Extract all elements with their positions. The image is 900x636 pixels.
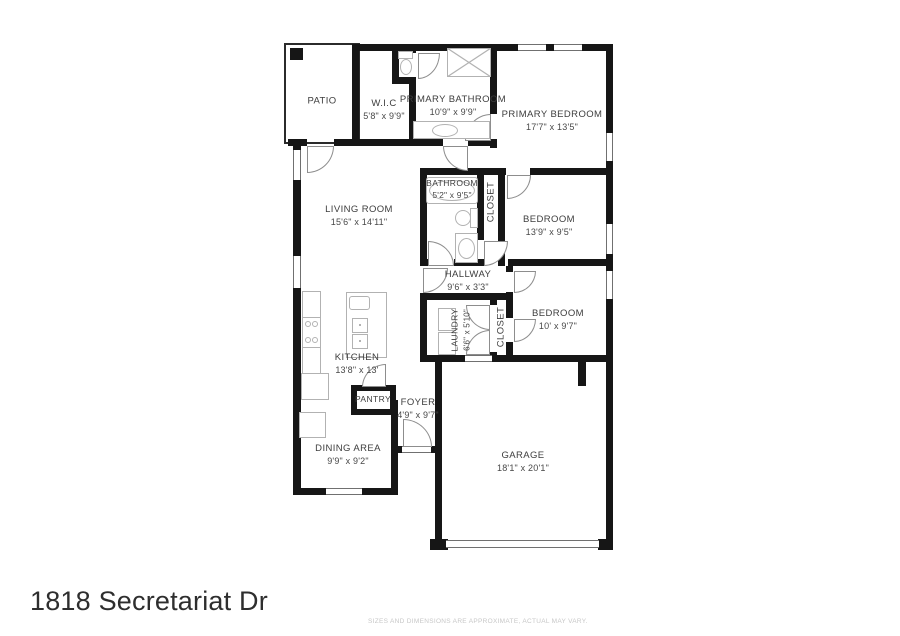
burner xyxy=(305,321,311,327)
window xyxy=(293,256,301,288)
room-name: LIVING ROOM xyxy=(325,203,393,216)
wall xyxy=(420,259,428,266)
wall xyxy=(490,293,497,305)
wall xyxy=(506,266,513,272)
window xyxy=(606,224,613,254)
room-name: LAUNDRY xyxy=(449,308,461,351)
room-dims: 6'6" x 5'10" xyxy=(461,308,472,351)
wall-stub xyxy=(578,362,586,386)
door-arc-front xyxy=(403,419,432,447)
room-label-living-room: LIVING ROOM 15'6" x 14'11" xyxy=(325,203,393,229)
door-arc-patio xyxy=(307,146,334,173)
room-dims: 13'8" x 13' xyxy=(335,364,380,377)
wall xyxy=(423,355,465,362)
window xyxy=(606,133,613,161)
room-name: PRIMARY BATHROOM xyxy=(400,93,506,106)
wall xyxy=(530,168,613,175)
room-label-closet2: CLOSET xyxy=(494,307,507,347)
toilet-bowl xyxy=(455,210,471,226)
dining-cabinet xyxy=(299,412,326,438)
wall xyxy=(352,44,359,146)
room-dims: 10' x 9'7" xyxy=(532,320,584,333)
window xyxy=(293,150,301,180)
room-name: KITCHEN xyxy=(335,351,380,364)
disclaimer-text: SIZES AND DIMENSIONS ARE APPROXIMATE, AC… xyxy=(368,618,588,625)
wall xyxy=(293,139,301,495)
front-door-sill xyxy=(402,446,431,453)
room-dims: 9'9" x 9'2" xyxy=(315,455,381,468)
window xyxy=(518,44,546,51)
room-name: FOYER xyxy=(397,396,439,409)
garage-door-jamb xyxy=(598,539,613,550)
appliance-knob xyxy=(359,324,361,326)
appliance-knob xyxy=(359,340,361,342)
room-dims: 18'1" x 20'1" xyxy=(497,462,549,475)
room-dims: 17'7" x 13'5" xyxy=(502,121,603,134)
vanity-sink xyxy=(432,124,458,137)
room-label-primary-bathroom: PRIMARY BATHROOM 10'9" x 9'9" xyxy=(400,93,506,119)
room-label-wic: W.I.C 5'8" x 9'9" xyxy=(363,97,405,123)
door-arc-water-closet xyxy=(418,53,440,79)
wall xyxy=(334,139,443,146)
toilet-bowl xyxy=(400,59,412,75)
wall xyxy=(420,293,427,362)
wall xyxy=(492,355,613,362)
room-label-foyer: FOYER 4'9" x 9'7" xyxy=(397,396,439,422)
window xyxy=(554,44,582,51)
door-arc-bathroom xyxy=(428,241,454,266)
wall xyxy=(362,488,398,495)
room-name: PANTRY xyxy=(355,394,391,406)
room-dims: 10'9" x 9'9" xyxy=(400,106,506,119)
room-label-primary-bedroom: PRIMARY BEDROOM 17'7" x 13'5" xyxy=(502,108,603,134)
room-name: DINING AREA xyxy=(315,442,381,455)
wall xyxy=(477,168,484,240)
room-name: CLOSET xyxy=(494,307,507,347)
toilet-tank xyxy=(470,208,478,228)
floor-plan-image: PATIO W.I.C 5'8" x 9'9" PRIMARY BATHROOM… xyxy=(0,0,900,636)
room-name: BEDROOM xyxy=(523,213,575,226)
room-name: PATIO xyxy=(307,94,336,107)
toilet-tank xyxy=(398,51,413,59)
room-dims: 15'6" x 14'11" xyxy=(325,216,393,229)
wall xyxy=(490,141,497,148)
shower-x-lines xyxy=(447,48,491,77)
address-title: 1818 Secretariat Dr xyxy=(30,586,268,617)
burner xyxy=(312,337,318,343)
window xyxy=(326,488,362,495)
room-label-dining-area: DINING AREA 9'9" x 9'2" xyxy=(315,442,381,468)
room-label-bathroom: BATHROOM 5'2" x 9'5" xyxy=(426,178,478,202)
room-name: W.I.C xyxy=(363,97,405,110)
door-arc-bedroom1 xyxy=(507,175,531,199)
room-dims: 5'2" x 9'5" xyxy=(426,190,478,202)
room-name: CLOSET xyxy=(484,182,497,222)
refrigerator xyxy=(301,373,329,400)
room-name: PRIMARY BEDROOM xyxy=(502,108,603,121)
window xyxy=(606,271,613,299)
door-arc-bedroom2 xyxy=(514,271,536,293)
room-label-garage: GARAGE 18'1" x 20'1" xyxy=(497,449,549,475)
room-label-bedroom1: BEDROOM 13'9" x 9'5" xyxy=(523,213,575,239)
room-dims: 5'8" x 9'9" xyxy=(363,110,405,123)
room-label-pantry: PANTRY xyxy=(355,394,391,406)
room-name: BATHROOM xyxy=(426,178,478,190)
burner xyxy=(305,337,311,343)
room-label-laundry: LAUNDRY 6'6" x 5'10" xyxy=(449,308,472,351)
wall xyxy=(508,259,613,266)
room-dims: 9'6" x 3'3" xyxy=(445,281,491,294)
burner xyxy=(312,321,318,327)
wall xyxy=(431,446,442,453)
island-sink xyxy=(349,296,370,310)
sink-basin xyxy=(458,238,475,259)
room-label-patio: PATIO xyxy=(307,94,336,107)
room-name: GARAGE xyxy=(497,449,549,462)
room-label-closet1: CLOSET xyxy=(484,182,497,222)
patio-corner-post xyxy=(290,48,303,60)
room-dims: 13'9" x 9'5" xyxy=(523,226,575,239)
garage-entry-threshold xyxy=(465,355,492,362)
room-dims: 4'9" x 9'7" xyxy=(397,409,439,422)
room-label-kitchen: KITCHEN 13'8" x 13' xyxy=(335,351,380,377)
room-label-hallway: HALLWAY 9'6" x 3'3" xyxy=(445,268,491,294)
garage-door xyxy=(446,540,599,548)
room-name: BEDROOM xyxy=(532,307,584,320)
wall xyxy=(391,446,402,453)
room-label-bedroom2: BEDROOM 10' x 9'7" xyxy=(532,307,584,333)
room-name: HALLWAY xyxy=(445,268,491,281)
